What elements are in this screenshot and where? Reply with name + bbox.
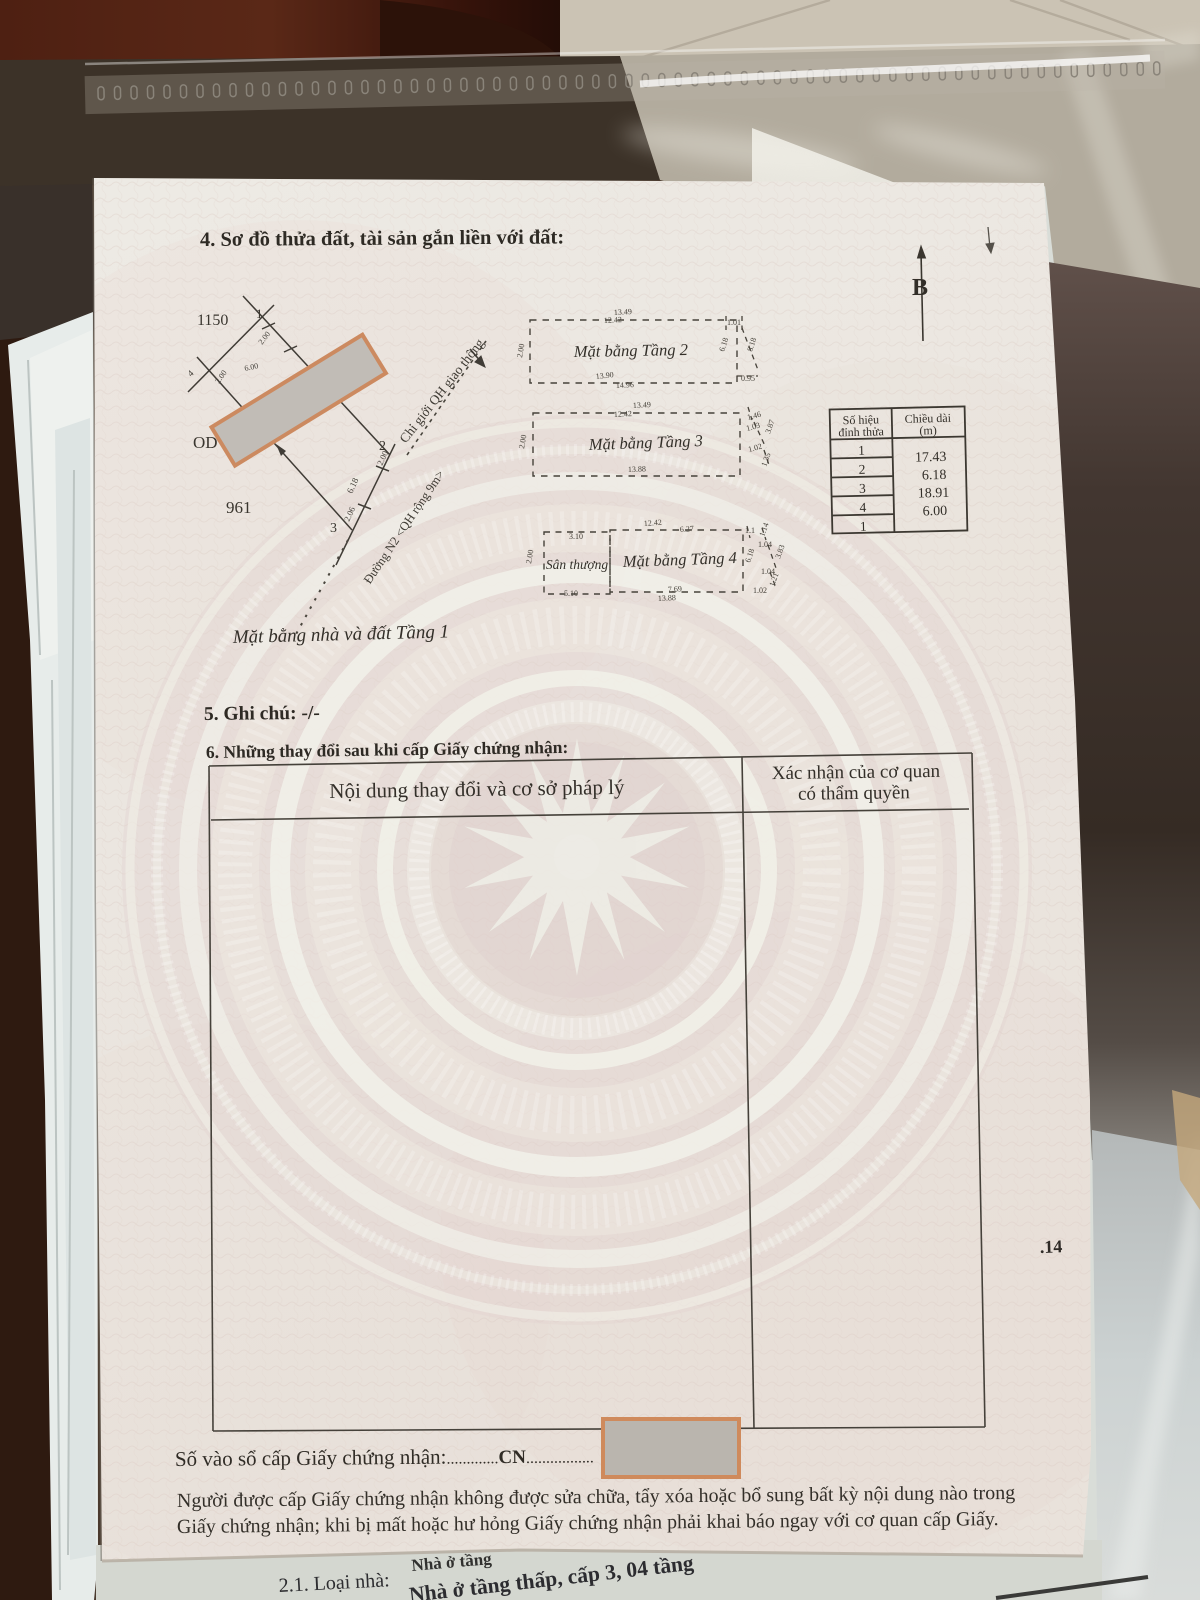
svg-text:12.42: 12.42 — [604, 315, 622, 325]
svg-text:OD: OD — [193, 433, 218, 452]
svg-text:13.90: 13.90 — [595, 370, 614, 381]
svg-text:Xác nhận của cơ quan: Xác nhận của cơ quan — [772, 761, 941, 784]
svg-text:1.02: 1.02 — [753, 586, 767, 595]
svg-text:4: 4 — [859, 500, 866, 515]
svg-text:14.96: 14.96 — [616, 380, 634, 390]
svg-text:1.01: 1.01 — [727, 318, 741, 327]
svg-text:12.42: 12.42 — [614, 409, 632, 419]
svg-text:1.1: 1.1 — [745, 526, 755, 535]
svg-text:13.88: 13.88 — [628, 464, 646, 474]
svg-text:13.88: 13.88 — [658, 593, 676, 603]
svg-text:6.18: 6.18 — [922, 468, 947, 484]
svg-text:3: 3 — [330, 521, 337, 536]
svg-text:961: 961 — [226, 498, 252, 517]
svg-text:1: 1 — [858, 443, 865, 458]
svg-text:3.10: 3.10 — [569, 532, 583, 541]
svg-text:1.04: 1.04 — [758, 540, 772, 549]
svg-text:1150: 1150 — [197, 312, 228, 329]
svg-text:Mặt bằng Tầng 3: Mặt bằng Tầng 3 — [587, 431, 703, 454]
svg-text:13.49: 13.49 — [633, 400, 651, 410]
svg-text:0.95: 0.95 — [741, 374, 755, 383]
svg-text:6.00: 6.00 — [923, 504, 948, 520]
svg-text:Sân thượng: Sân thượng — [546, 557, 608, 572]
svg-text:6.27: 6.27 — [680, 524, 695, 534]
svg-text:5. Ghi chú: -/-: 5. Ghi chú: -/- — [204, 703, 320, 725]
svg-text:2: 2 — [858, 462, 865, 477]
svg-text:4. Sơ đồ thửa đất, tài sản gắn: 4. Sơ đồ thửa đất, tài sản gắn liền với … — [200, 226, 564, 251]
svg-text:có thẩm quyền: có thẩm quyền — [798, 782, 911, 805]
svg-text:3: 3 — [859, 481, 866, 496]
svg-text:18.91: 18.91 — [918, 486, 950, 502]
svg-text:(m): (m) — [919, 423, 937, 437]
svg-text:Mặt bằng Tầng 4: Mặt bằng Tầng 4 — [621, 548, 737, 571]
svg-text:B: B — [912, 275, 928, 301]
svg-text:5.10: 5.10 — [564, 589, 578, 598]
svg-text:đỉnh thửa: đỉnh thửa — [838, 424, 884, 439]
svg-text:1: 1 — [860, 519, 867, 534]
svg-text:.14: .14 — [1039, 1236, 1062, 1257]
svg-text:Mặt bằng Tầng 2: Mặt bằng Tầng 2 — [573, 340, 688, 361]
svg-text:17.43: 17.43 — [915, 450, 947, 466]
svg-text:Nội dung thay đổi và cơ sở phá: Nội dung thay đổi và cơ sở pháp lý — [329, 775, 625, 803]
svg-text:1: 1 — [256, 306, 263, 321]
svg-text:12.42: 12.42 — [644, 518, 663, 528]
